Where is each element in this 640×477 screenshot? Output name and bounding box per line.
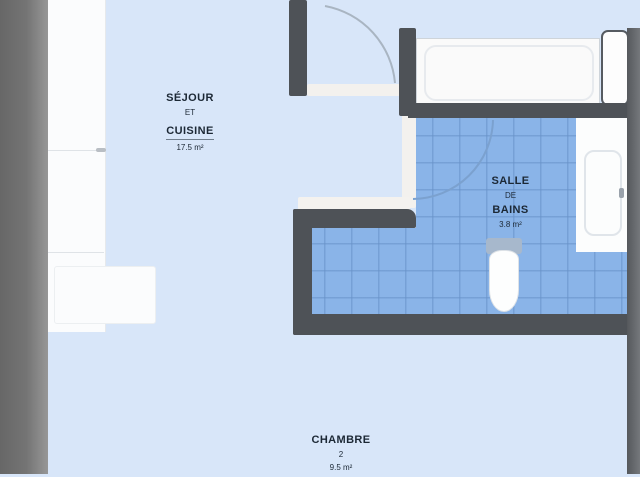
room-label-living: SÉJOUR ET CUISINE 17.5 m² — [145, 93, 235, 157]
door-leaf — [601, 30, 629, 106]
living-room-conj: ET — [145, 109, 235, 117]
bathroom-area: 3.8 m² — [468, 221, 553, 229]
living-room-name2: CUISINE — [166, 126, 213, 140]
living-room-area: 17.5 m² — [145, 144, 235, 152]
bathroom-conj: DE — [468, 192, 553, 200]
bedroom-number: 2 — [296, 451, 386, 459]
wall-bathroom-south — [293, 314, 640, 335]
bathroom-door-opening — [402, 114, 416, 208]
wall-bathroom-north — [408, 103, 640, 118]
cabinet-handle — [96, 148, 106, 152]
room-label-bedroom: CHAMBRE 2 9.5 m² — [296, 435, 386, 477]
cabinet-divider — [48, 252, 104, 253]
faucet-icon — [619, 188, 624, 198]
bedroom-name: CHAMBRE — [296, 435, 386, 446]
bathtub — [416, 38, 600, 106]
room-label-bathroom: SALLE DE BAINS 3.8 m² — [468, 176, 553, 234]
bathroom-tile-floor-extension — [312, 228, 416, 316]
sink-basin-icon — [584, 150, 622, 236]
vanity-counter — [576, 112, 627, 252]
wall-entry-left — [289, 0, 307, 96]
bathtub-basin — [424, 45, 594, 101]
bedroom-area: 9.5 m² — [296, 464, 386, 472]
bathroom-name2: BAINS — [468, 205, 553, 216]
counter-return — [54, 266, 156, 324]
exterior-wall-left — [0, 0, 48, 474]
living-room-name: SÉJOUR — [145, 93, 235, 104]
exterior-wall-right — [627, 28, 640, 474]
toilet-bowl — [489, 250, 519, 312]
entry-door-opening — [307, 84, 400, 96]
bathroom-name: SALLE — [468, 176, 553, 187]
